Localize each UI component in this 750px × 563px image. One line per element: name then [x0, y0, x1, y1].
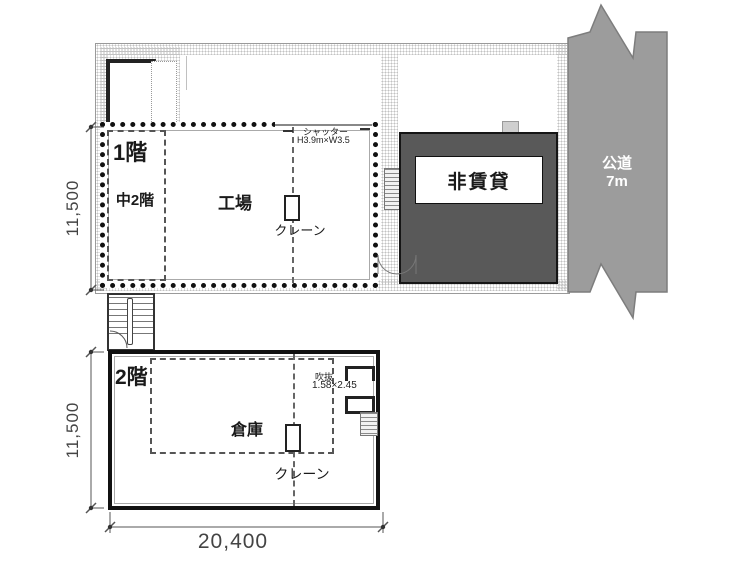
- floor1-name-label: 1階: [113, 135, 147, 167]
- crane-label-1f: クレーン: [255, 220, 345, 239]
- hoist-opening-size-label: 1.58×2.45: [312, 380, 357, 391]
- factory-room-label: 工場: [190, 189, 280, 214]
- non-rental-building: 非賃貸: [399, 132, 558, 284]
- dimension-label-floor1-height: 11,500: [63, 168, 85, 248]
- stair-handrail: [127, 298, 133, 345]
- floor2-name-label: 2階: [115, 361, 148, 391]
- floor-plan-canvas: 1階 中2階 工場 クレーン シャッター H3.9m×W3.5 非賃貸 2階 倉…: [0, 0, 750, 563]
- crane-hoist-1f: [284, 195, 300, 221]
- staircase: [107, 293, 155, 351]
- crane-hoist-2f: [285, 424, 301, 452]
- boundary-tick: [186, 56, 187, 90]
- road-label-line2: 7m: [593, 173, 641, 191]
- site-hatch-gap-strip: [381, 44, 398, 284]
- floor1-plan: 1階 中2階 工場 クレーン シャッター H3.9m×W3.5: [100, 122, 378, 288]
- shutter-size-label: H3.9m×W3.5: [297, 135, 350, 145]
- road-label-line1: 公道: [593, 155, 641, 173]
- non-rental-label: 非賃貸: [447, 167, 510, 194]
- mezzanine-label: 中2階: [103, 189, 167, 210]
- dimension-label-width: 20,400: [168, 530, 298, 554]
- annex-structure: [106, 59, 156, 130]
- crane-label-2f: クレーン: [257, 464, 347, 484]
- warehouse-room-label: 倉庫: [202, 416, 292, 440]
- site-hatch-right: [557, 44, 567, 291]
- dimension-label-floor2-height: 11,500: [63, 390, 85, 470]
- road-label: 公道 7m: [593, 155, 641, 191]
- floor2-right-stair: [360, 412, 378, 436]
- annex-structure-extension: [151, 61, 177, 124]
- dimension-floor2-height: [86, 347, 104, 513]
- shutter-leader-dash-right: [360, 128, 370, 130]
- floor2-plan: 2階 倉庫 クレーン 吹抜 1.58×2.45: [108, 350, 380, 510]
- shutter-leader-dash-left: [283, 130, 293, 132]
- non-rental-label-box: 非賃貸: [415, 156, 543, 204]
- hoist-opening-bracket-top: [345, 366, 375, 381]
